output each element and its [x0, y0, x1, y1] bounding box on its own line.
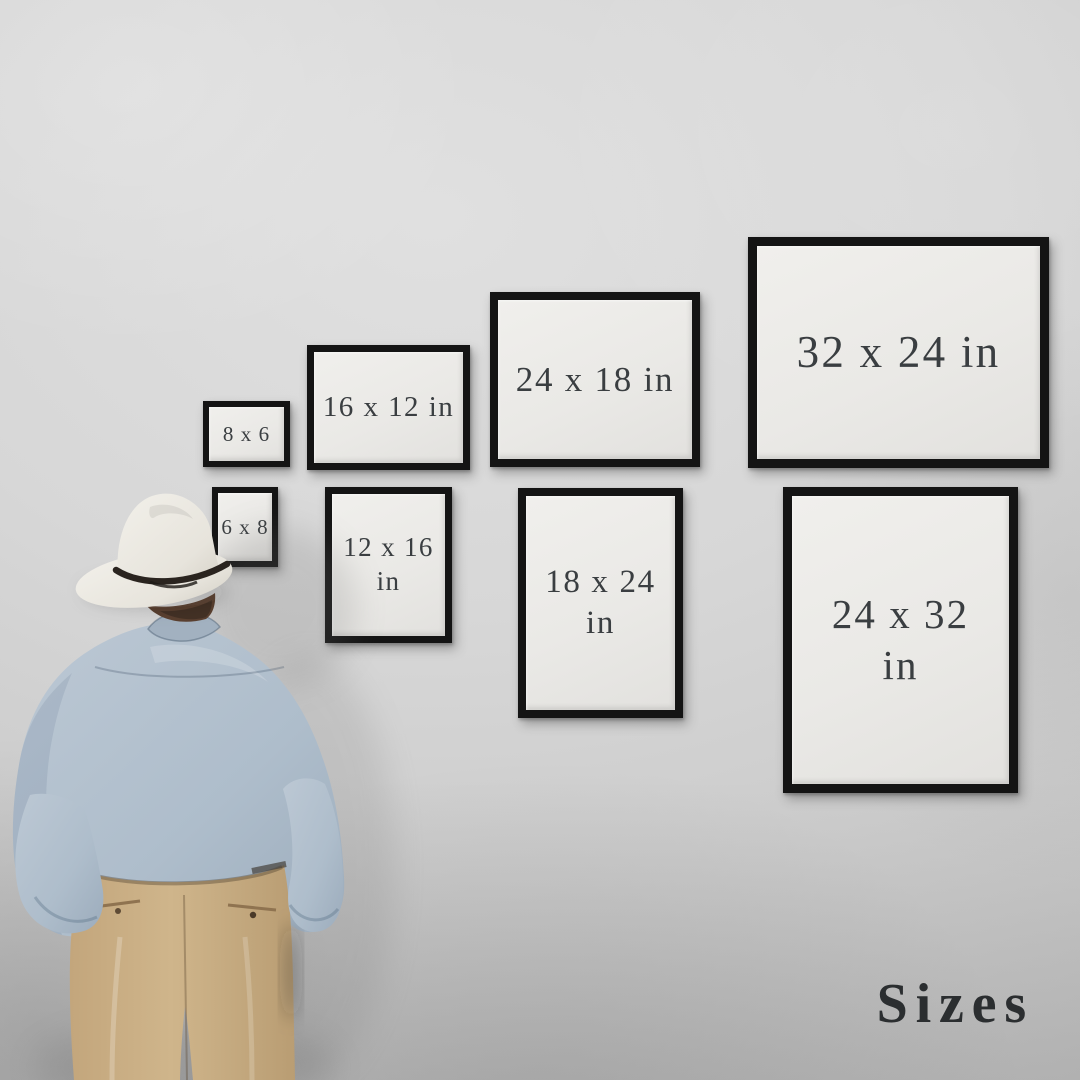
frame-24x32: 24 x 32in — [783, 487, 1018, 793]
frame-24x18: 24 x 18 in — [490, 292, 700, 467]
frame-18x24: 18 x 24in — [518, 488, 683, 718]
frame-label-line2: in — [586, 603, 615, 644]
frame-label-line2: in — [883, 640, 919, 691]
frame-face: 24 x 18 in — [498, 300, 692, 459]
frame-face: 24 x 32in — [792, 496, 1009, 784]
frame-label: 24 x 32 — [832, 589, 969, 640]
frame-face: 18 x 24in — [526, 496, 675, 710]
frame-face: 16 x 12 in — [314, 352, 463, 463]
man-figure — [0, 467, 430, 1080]
frame-face: 8 x 6 — [209, 407, 284, 461]
frame-label: 18 x 24 — [545, 562, 656, 603]
frame-label: 16 x 12 in — [323, 389, 454, 425]
frame-label: 8 x 6 — [223, 421, 270, 447]
frame-16x12: 16 x 12 in — [307, 345, 470, 470]
frame-8x6: 8 x 6 — [203, 401, 290, 467]
frame-label: 32 x 24 in — [797, 324, 1001, 380]
hip-gap-shadow — [285, 924, 297, 1020]
right-pocket-button — [250, 912, 256, 918]
page-title: Sizes — [877, 972, 1034, 1036]
frame-label: 24 x 18 in — [516, 358, 674, 402]
frame-32x24: 32 x 24 in — [748, 237, 1049, 468]
frame-face: 32 x 24 in — [757, 246, 1040, 459]
left-pocket-button — [115, 908, 121, 914]
